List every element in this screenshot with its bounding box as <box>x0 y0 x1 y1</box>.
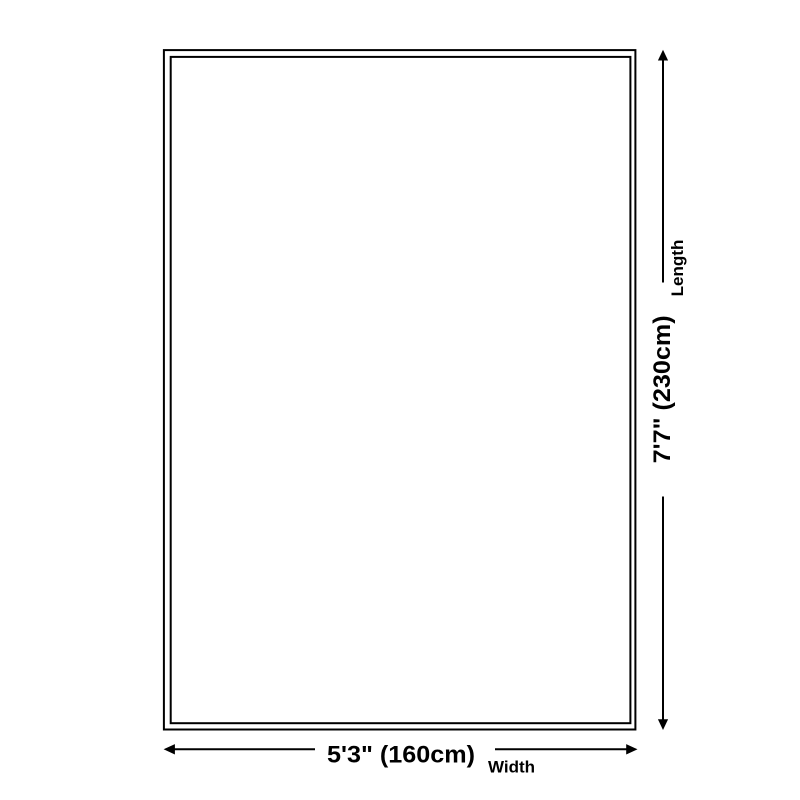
svg-text:Length: Length <box>668 240 687 297</box>
svg-text:5'3" (160cm): 5'3" (160cm) <box>327 742 475 769</box>
svg-text:7'7" (230cm): 7'7" (230cm) <box>649 315 676 463</box>
svg-text:Width: Width <box>488 757 535 776</box>
